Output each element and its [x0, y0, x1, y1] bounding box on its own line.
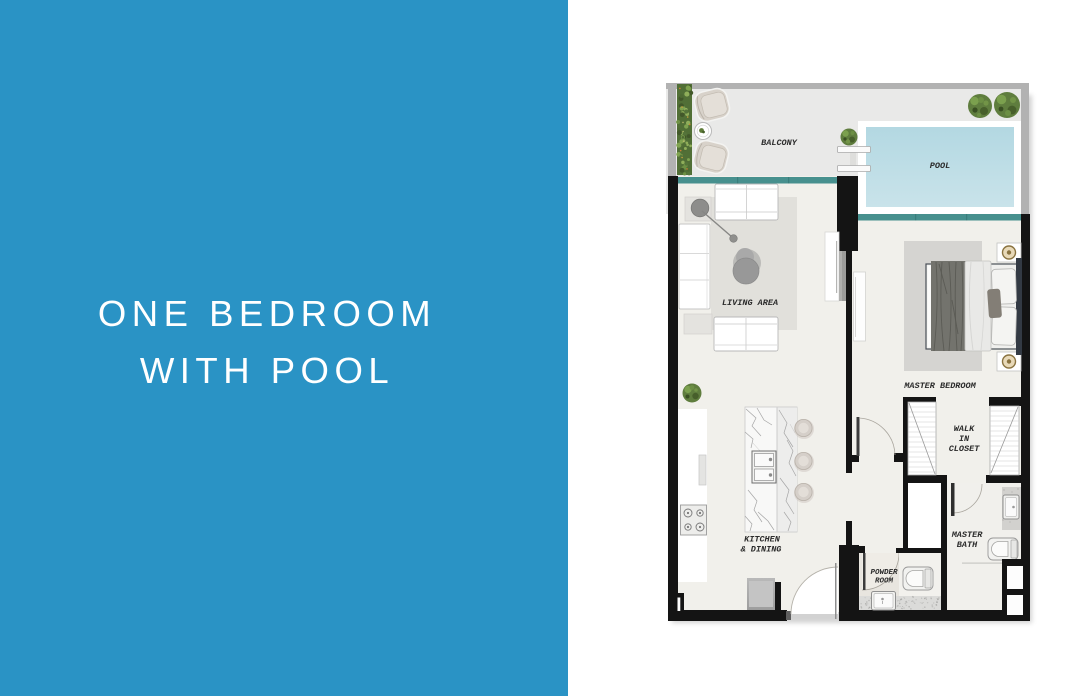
svg-text:IN: IN	[959, 434, 970, 444]
svg-text:CLOSET: CLOSET	[949, 444, 981, 454]
svg-text:WALK: WALK	[954, 424, 975, 434]
svg-text:BALCONY: BALCONY	[761, 138, 798, 148]
svg-text:POWDER: POWDER	[870, 569, 898, 577]
svg-text:ROOM: ROOM	[875, 578, 894, 586]
svg-text:POOL: POOL	[930, 161, 950, 171]
svg-text:MASTER: MASTER	[951, 530, 984, 540]
svg-text:& DINING: & DINING	[740, 545, 782, 555]
svg-text:BATH: BATH	[957, 540, 978, 550]
svg-text:MASTER BEDROOM: MASTER BEDROOM	[903, 381, 976, 391]
svg-text:KITCHEN: KITCHEN	[744, 535, 781, 545]
svg-text:LIVING AREA: LIVING AREA	[722, 298, 778, 308]
